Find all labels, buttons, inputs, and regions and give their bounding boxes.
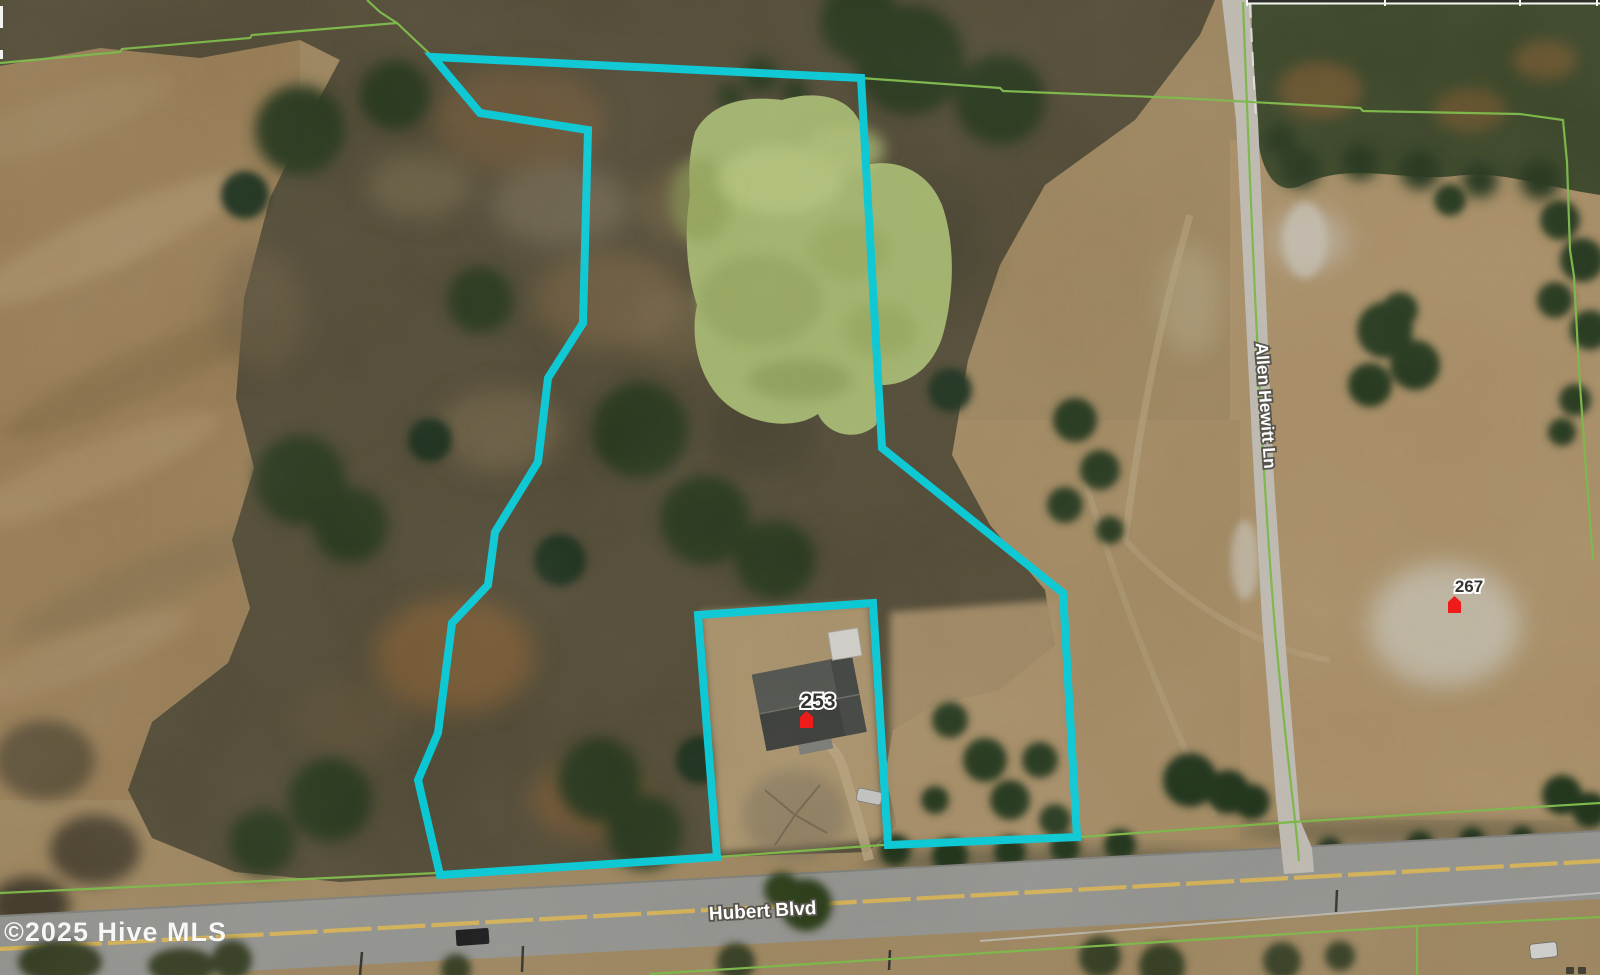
cloud-overlay [0, 0, 1600, 975]
aerial-map[interactable]: 253 267 Allen Hewitt Ln Hubert Blvd ©202… [0, 0, 1600, 975]
aerial-map-image: 253 267 Allen Hewitt Ln Hubert Blvd ©202… [0, 0, 1600, 975]
watermark: ©2025 Hive MLS [4, 917, 227, 947]
parcel-label-267: 267 [1455, 577, 1483, 596]
parcel-label-253: 253 [800, 690, 835, 713]
